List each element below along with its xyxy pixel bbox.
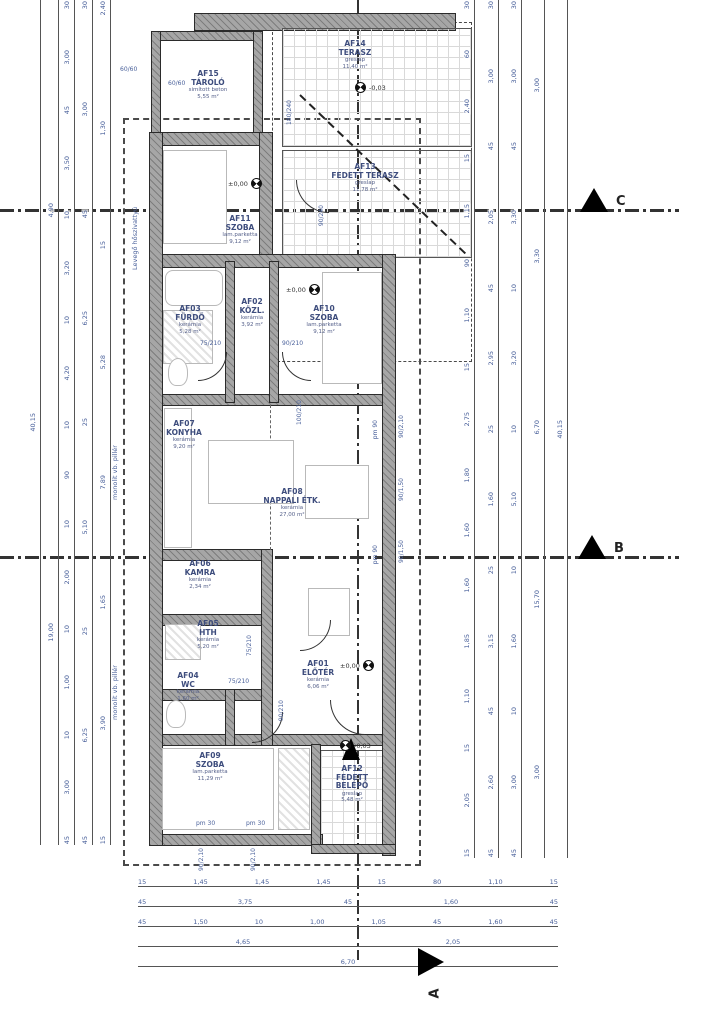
dimension-value: 10 (64, 730, 71, 740)
dimension-value: 45 (488, 848, 495, 858)
dimension-value: 90 (64, 470, 71, 480)
level-marker: ±0,00 (228, 178, 262, 189)
toilet (168, 358, 188, 386)
dimension-value: 6,70 (341, 959, 355, 970)
dim-chain-right-1: 30602,40151,15901,10152,751,801,601,601,… (464, 0, 477, 858)
dimension-value: 3,00 (534, 764, 541, 780)
wall (312, 745, 320, 845)
dimension-value: 3,00 (64, 49, 71, 65)
section-marker-b-label: B (614, 541, 624, 556)
dimension-value: 15 (464, 848, 471, 858)
wall (150, 133, 162, 845)
dimension-value: 30 (464, 0, 471, 10)
dim-chain-bottom-5: 6,70 (138, 956, 558, 969)
door-size-label: 90/210 (282, 340, 303, 347)
window-size-label: 90/1,50 (398, 478, 405, 501)
dimension-value: 4,65 (236, 939, 250, 950)
parapet-label: pm 30 (196, 820, 215, 827)
dimension-value: 1,45 (255, 879, 269, 890)
dim-chain-left-5: 2,401,30155,287,891,653,9015 (100, 0, 113, 845)
dimension-value: 1,60 (464, 577, 471, 593)
level-cross-icon (361, 658, 377, 674)
dimension-value: 45 (64, 835, 71, 845)
room-label-af01: AF01 ELŐTÉR kerámia 6,06 m² (288, 660, 348, 690)
section-marker-c-icon (580, 188, 608, 212)
section-marker-a-label: A (428, 988, 443, 998)
window-size-label: 90/2,10 (250, 848, 257, 871)
dimension-value: 6,70 (534, 419, 541, 435)
dimension-value: 1,60 (488, 919, 502, 930)
dimension-value: 10 (255, 919, 263, 930)
dimension-value: 45 (82, 835, 89, 845)
dimension-value: 1,15 (464, 203, 471, 219)
dimension-value: 40,15 (557, 419, 564, 440)
parapet-label: pm 90 (372, 545, 379, 564)
level-cross-icon (338, 738, 354, 754)
heat-pump-label: Levegő hőszivattyú (132, 150, 139, 270)
dimension-value: 5,10 (82, 519, 89, 535)
dimension-value: 15 (378, 879, 386, 890)
dimension-value: 10 (511, 424, 518, 434)
door-size-label: 100/210 (296, 400, 303, 425)
dimension-value: 45 (488, 706, 495, 716)
dimension-value: 3,00 (82, 101, 89, 117)
dimension-value: 45 (82, 209, 89, 219)
dimension-value: 3,15 (488, 633, 495, 649)
dimension-value: 3,20 (64, 260, 71, 276)
dimension-value: 3,30 (511, 209, 518, 225)
wall (270, 262, 278, 402)
dimension-value: 90 (464, 258, 471, 268)
dimension-value: 15 (464, 153, 471, 163)
wall (226, 262, 234, 402)
room-label-af06: AF06 KAMRA kerámia 2,34 m² (168, 560, 232, 590)
parapet-label: pm 90 (372, 420, 379, 439)
dimension-value: 25 (82, 417, 89, 427)
dimension-value: 1,05 (371, 919, 385, 930)
room-label-af09: AF09 SZOBA lam.parketta 11,29 m² (178, 752, 242, 782)
room-label-af07: AF07 KONYHA kerámia 9,20 m² (152, 420, 216, 450)
room-label-af02: AF02 KÖZL. kerámia 3,92 m² (228, 298, 276, 328)
room-label-af08: AF08 NAPPALI ÉTK. kerámia 27,00 m² (262, 488, 322, 518)
section-marker-c-label: C (616, 194, 626, 209)
pillar-size-label: 60/60 (120, 66, 137, 73)
dim-chain-right-2: 303,00452,05452,95251,60253,15452,6045 (488, 0, 501, 858)
dimension-value: 25 (488, 565, 495, 575)
dimension-value: 30 (64, 0, 71, 10)
room-label-af05: AF05 HTH kerámia 5,20 m² (180, 620, 236, 650)
dimension-value: 45 (511, 848, 518, 858)
wall (312, 845, 395, 853)
dimension-value: 1,45 (316, 879, 330, 890)
level-marker: -0,03 (340, 740, 371, 751)
wall (254, 32, 262, 140)
dimension-value: 3,00 (511, 68, 518, 84)
dimension-value: 15 (100, 835, 107, 845)
dimension-value: 5,10 (511, 491, 518, 507)
door-size-label: 75/210 (200, 340, 221, 347)
dimension-value: 3,50 (64, 155, 71, 171)
wall (152, 32, 160, 140)
dimension-value: 45 (511, 141, 518, 151)
dim-chain-right-5: 40,15 (557, 0, 570, 858)
dimension-value: 5,28 (100, 354, 107, 370)
dimension-value: 15,70 (534, 589, 541, 610)
dimension-value: 2,00 (64, 569, 71, 585)
dimension-value: 4,20 (64, 365, 71, 381)
dimension-value: 1,60 (444, 899, 458, 910)
level-marker: ±0,00 (286, 284, 320, 295)
room-label-af12: AF12 FEDETT BELÉPŐ greslap 5,48 m² (322, 765, 382, 804)
window-size-label: 90/2,10 (198, 848, 205, 871)
dimension-value: 15 (464, 362, 471, 372)
dimension-value: 1,00 (64, 674, 71, 690)
dim-chain-left-1: 40,15 (30, 0, 43, 845)
level-marker: -0,03 (355, 82, 386, 93)
pillar-size-label: 60/60 (168, 80, 185, 87)
window-size-label: 90/1,50 (398, 540, 405, 563)
dimension-value: 1,65 (100, 594, 107, 610)
bathtub (165, 270, 223, 306)
dimension-value: 15 (138, 879, 146, 890)
dim-chain-left-4: 303,00456,25255,10256,2545 (82, 0, 95, 845)
dimension-value: 15 (100, 240, 107, 250)
dimension-value: 10 (64, 519, 71, 529)
dimension-value: 30 (511, 0, 518, 10)
dimension-value: 30 (82, 0, 89, 10)
dimension-value: 4,90 (48, 202, 55, 218)
dimension-value: 1,50 (193, 919, 207, 930)
dimension-value: 15 (464, 743, 471, 753)
section-marker-b-icon (578, 535, 606, 559)
dim-chain-right-4: 3,003,306,7015,703,00 (534, 0, 547, 858)
wall (152, 32, 262, 40)
level-cross-icon (249, 176, 265, 192)
dimension-value: 2,05 (446, 939, 460, 950)
dim-chain-bottom-2: 453,75451,6045 (138, 896, 558, 909)
dim-chain-bottom-1: 151,451,451,4515801,1015 (138, 876, 558, 889)
dimension-value: 2,40 (100, 0, 107, 16)
dimension-value: 10 (64, 624, 71, 634)
dimension-value: 45 (488, 141, 495, 151)
room-label-af04: AF04 WC kerámia 1,60 m² (162, 672, 214, 702)
dimension-value: 3,90 (100, 715, 107, 731)
dim-chain-left-3: 303,00453,50103,20104,201090102,00101,00… (64, 0, 77, 845)
room-label-af14: AF14 TERASZ greslap 11,40 m² (315, 40, 395, 70)
dimension-value: 19,00 (48, 622, 55, 643)
dim-chain-bottom-4: 4,652,05 (138, 936, 558, 949)
dimension-value: 40,15 (30, 412, 37, 433)
dimension-value: 1,45 (193, 879, 207, 890)
dimension-value: 2,60 (488, 774, 495, 790)
dimension-value: 80 (433, 879, 441, 890)
dimension-value: 3,00 (534, 77, 541, 93)
dimension-value: 1,00 (310, 919, 324, 930)
dimension-value: 2,40 (464, 98, 471, 114)
wall (226, 690, 234, 745)
wardrobe (278, 748, 310, 830)
dimension-value: 10 (64, 210, 71, 220)
dimension-value: 1,10 (464, 307, 471, 323)
dimension-value: 1,10 (464, 688, 471, 704)
dimension-value: 25 (488, 424, 495, 434)
dimension-value: 45 (138, 919, 146, 930)
dimension-value: 1,60 (488, 491, 495, 507)
dimension-value: 60 (464, 49, 471, 59)
dimension-value: 45 (344, 899, 352, 910)
dimension-value: 3,00 (511, 774, 518, 790)
parapet-label: pm 30 (246, 820, 265, 827)
dimension-value: 45 (433, 919, 441, 930)
dimension-value: 10 (64, 420, 71, 430)
dimension-value: 2,95 (488, 350, 495, 366)
dimension-value: 3,30 (534, 248, 541, 264)
dim-chain-right-3: 303,00453,30103,20105,10101,60103,0045 (511, 0, 524, 858)
dimension-value: 3,20 (511, 350, 518, 366)
dimension-value: 6,25 (82, 727, 89, 743)
door-size-label: 75/210 (246, 635, 253, 656)
dim-chain-left-2: 4,9019,00 (48, 0, 61, 845)
dimension-value: 45 (550, 899, 558, 910)
dimension-value: 3,00 (64, 779, 71, 795)
wall (383, 255, 395, 855)
window-size-label: 90/2,10 (398, 415, 405, 438)
wall (150, 835, 322, 845)
door-size-label: 90/240 (318, 205, 325, 226)
floor-plan-canvas: AF15 TÁROLÓ simított beton 5,55 m² AF14 … (0, 0, 719, 1024)
dimension-value: 1,60 (511, 633, 518, 649)
dimension-value: 10 (64, 315, 71, 325)
door-size-label: 75/210 (228, 678, 249, 685)
level-cross-icon (307, 282, 323, 298)
dimension-value: 6,25 (82, 310, 89, 326)
room-label-af03: AF03 FÜRDŐ kerámia 5,28 m² (160, 305, 220, 335)
dimension-value: 10 (511, 706, 518, 716)
dimension-value: 45 (138, 899, 146, 910)
room-label-af11: AF11 SZOBA lam.parketta 9,12 m² (205, 215, 275, 245)
dimension-value: 10 (511, 283, 518, 293)
dimension-value: 10 (511, 565, 518, 575)
dimension-value: 3,00 (488, 68, 495, 84)
wall (150, 133, 272, 145)
section-marker-a-icon (418, 948, 444, 976)
dimension-value: 45 (550, 919, 558, 930)
door-size-label: 90/210 (278, 700, 285, 721)
dimension-value: 15 (550, 879, 558, 890)
dimension-value: 7,89 (100, 474, 107, 490)
dimension-value: 45 (488, 283, 495, 293)
dimension-value: 1,80 (464, 467, 471, 483)
door-size-label: 180/240 (286, 100, 293, 125)
dimension-value: 1,30 (100, 120, 107, 136)
dimension-value: 3,75 (238, 899, 252, 910)
level-marker: ±0,00 (340, 660, 374, 671)
wall (260, 133, 272, 267)
dimension-value: 1,60 (464, 522, 471, 538)
dimension-value: 2,05 (488, 209, 495, 225)
room-label-af10: AF10 SZOBA lam.parketta 9,12 m² (292, 305, 356, 335)
dim-chain-bottom-3: 451,50101,001,05451,6045 (138, 916, 558, 929)
dimension-value: 1,10 (488, 879, 502, 890)
room-label-af13: AF13 FEDETT TERASZ greslap 11,78 m² (320, 163, 410, 193)
dimension-value: 30 (488, 0, 495, 10)
level-cross-icon (353, 80, 369, 96)
dimension-value: 45 (64, 105, 71, 115)
dimension-value: 25 (82, 626, 89, 636)
dimension-value: 2,75 (464, 411, 471, 427)
dimension-value: 2,05 (464, 792, 471, 808)
toilet (166, 700, 186, 728)
wall (150, 550, 272, 560)
dimension-value: 1,85 (464, 633, 471, 649)
